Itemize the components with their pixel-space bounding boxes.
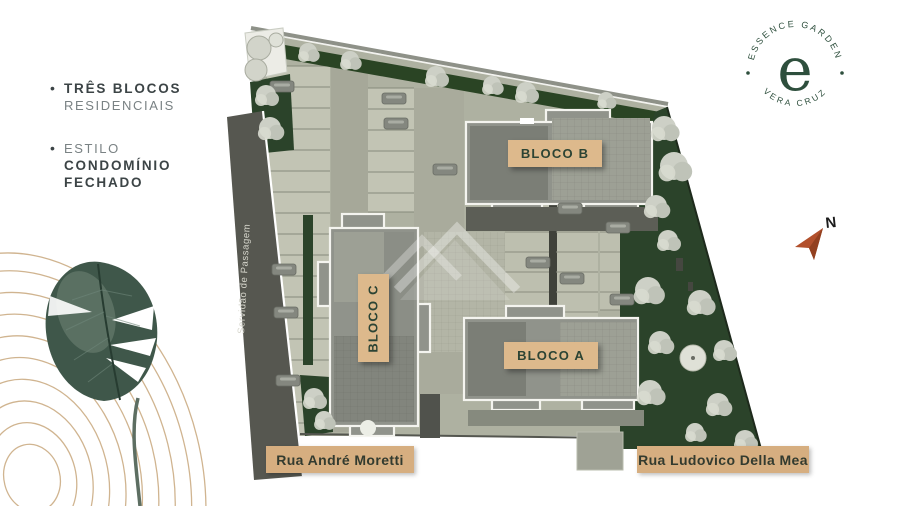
north-arrow-icon	[795, 228, 823, 260]
bloco-a-shadow	[468, 410, 644, 426]
bullet-icon: •	[50, 140, 64, 156]
logo-letter: e	[777, 35, 813, 105]
feature-blocos-line2: RESIDENCIAIS	[64, 97, 220, 114]
brand-logo: ESSENCE GARDEN VERA CRUZ e	[746, 19, 844, 108]
corner-structures	[245, 28, 287, 81]
street-left-text: Rua André Moretti	[276, 452, 404, 468]
bloco-a-label-text: BLOCO A	[517, 348, 585, 363]
feature-estilo-line1: ESTILO	[64, 140, 120, 157]
feature-estilo-line2: CONDOMÍNIO	[64, 157, 220, 174]
bloco-a-label: BLOCO A	[504, 342, 598, 369]
site-plan-graphic: Servidão de Passagem N ESSENCE GARDEN VE…	[0, 0, 900, 506]
street-label-ludovico-della-mea: Rua Ludovico Della Mea	[637, 446, 809, 473]
bullet-icon: •	[50, 80, 64, 96]
feature-item-blocos: • TRÊS BLOCOS	[50, 80, 220, 97]
feature-estilo-line3: FECHADO	[64, 174, 220, 191]
street-label-andre-moretti: Rua André Moretti	[266, 446, 414, 473]
street-right-text: Rua Ludovico Della Mea	[638, 452, 808, 468]
bloco-b-label: BLOCO B	[508, 140, 602, 167]
feature-list: • TRÊS BLOCOS RESIDENCIAIS • ESTILO COND…	[50, 80, 220, 191]
north-arrow: N	[795, 214, 837, 260]
north-label: N	[825, 214, 838, 232]
bloco-c-label: BLOCO C	[358, 274, 389, 362]
bloco-b-label-text: BLOCO B	[521, 146, 589, 161]
bloco-c-label-text: BLOCO C	[366, 284, 381, 352]
feature-blocos-line1: TRÊS BLOCOS	[64, 80, 181, 97]
feature-item-estilo: • ESTILO	[50, 140, 220, 157]
marketing-siteplan-page: Servidão de Passagem N ESSENCE GARDEN VE…	[0, 0, 900, 506]
